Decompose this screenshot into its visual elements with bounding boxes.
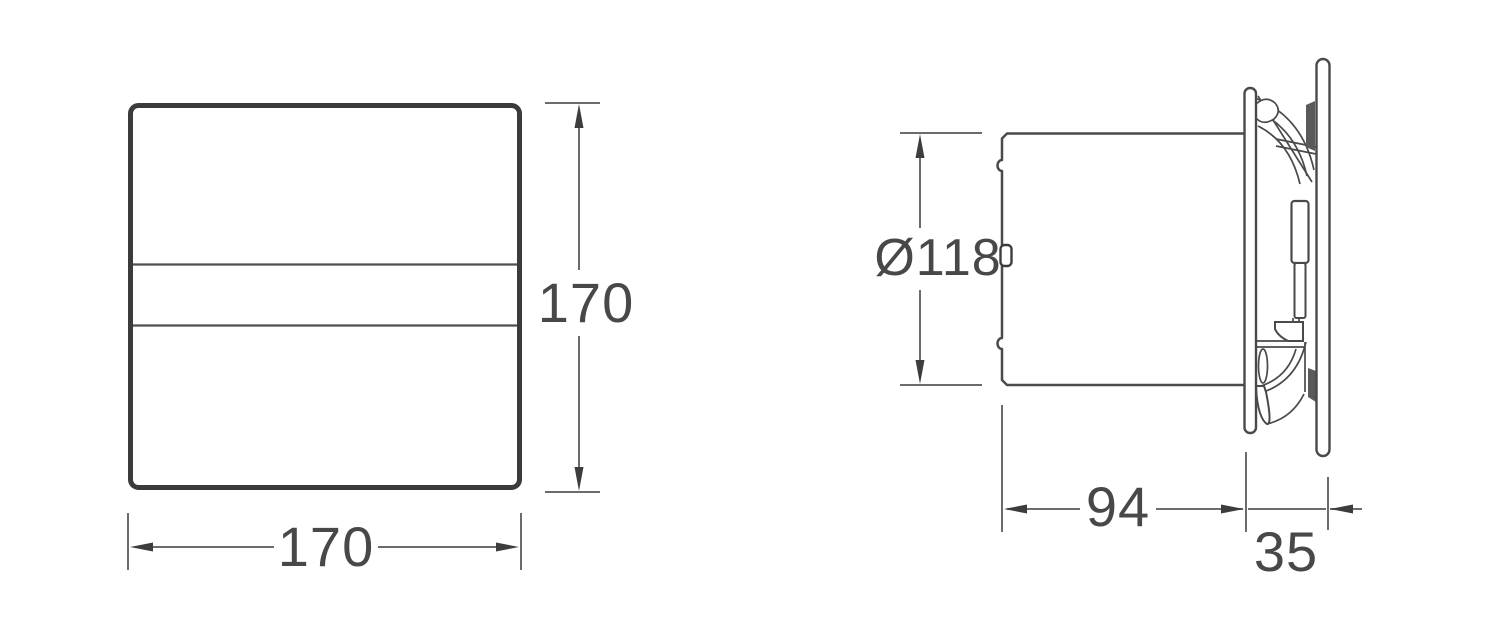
technical-drawing-canvas: 170 170 <box>0 0 1500 644</box>
dim-arrow-left-outside-icon <box>1330 505 1353 514</box>
duct-clip-tab <box>1001 245 1012 266</box>
dim-arrow-left-icon <box>1004 505 1027 514</box>
bottom-bracket <box>1275 322 1303 341</box>
dim-label-duct-diameter: Ø118 <box>874 229 1001 287</box>
top-mount-wedge <box>1306 101 1315 151</box>
dim-arrow-up-icon <box>916 134 925 158</box>
lower-tongue <box>1256 386 1270 424</box>
front-height-dimension: 170 <box>538 103 634 492</box>
front-width-dimension: 170 <box>128 513 521 578</box>
impeller-curve-inner <box>1258 126 1300 184</box>
fan-internals <box>1255 96 1316 424</box>
dim-arrow-left-icon <box>130 543 153 552</box>
motor-lower-housing <box>1295 263 1306 318</box>
front-view <box>131 106 520 488</box>
motor-body <box>1292 201 1309 263</box>
side-view <box>998 59 1330 456</box>
dim-label-front-height: 170 <box>538 271 634 334</box>
dim-arrow-right-icon <box>1221 505 1244 514</box>
dim-label-front-width: 170 <box>278 515 374 578</box>
hub-cap <box>1256 99 1278 122</box>
mounting-plate <box>1245 88 1257 433</box>
fan-dimension-drawing: 170 170 <box>0 0 1500 644</box>
duct-diameter-dimension: Ø118 <box>874 133 1001 385</box>
duct-depth-dimension: 94 <box>1002 405 1246 538</box>
front-panel-outline <box>131 106 520 488</box>
clip-detail <box>1259 349 1268 383</box>
dim-arrow-right-icon <box>496 543 519 552</box>
dim-arrow-down-icon <box>916 360 925 384</box>
bottom-arc <box>1267 394 1304 424</box>
dim-arrow-down-icon <box>575 467 584 491</box>
duct-body-outline <box>998 134 1246 386</box>
front-cover-panel <box>1317 59 1330 456</box>
dim-label-duct-depth: 94 <box>1086 475 1150 538</box>
dim-arrow-up-icon <box>575 104 584 128</box>
panel-depth-dimension: 35 <box>1248 477 1362 583</box>
dim-label-panel-depth: 35 <box>1254 520 1318 583</box>
bottom-mount-wedge <box>1308 368 1316 402</box>
